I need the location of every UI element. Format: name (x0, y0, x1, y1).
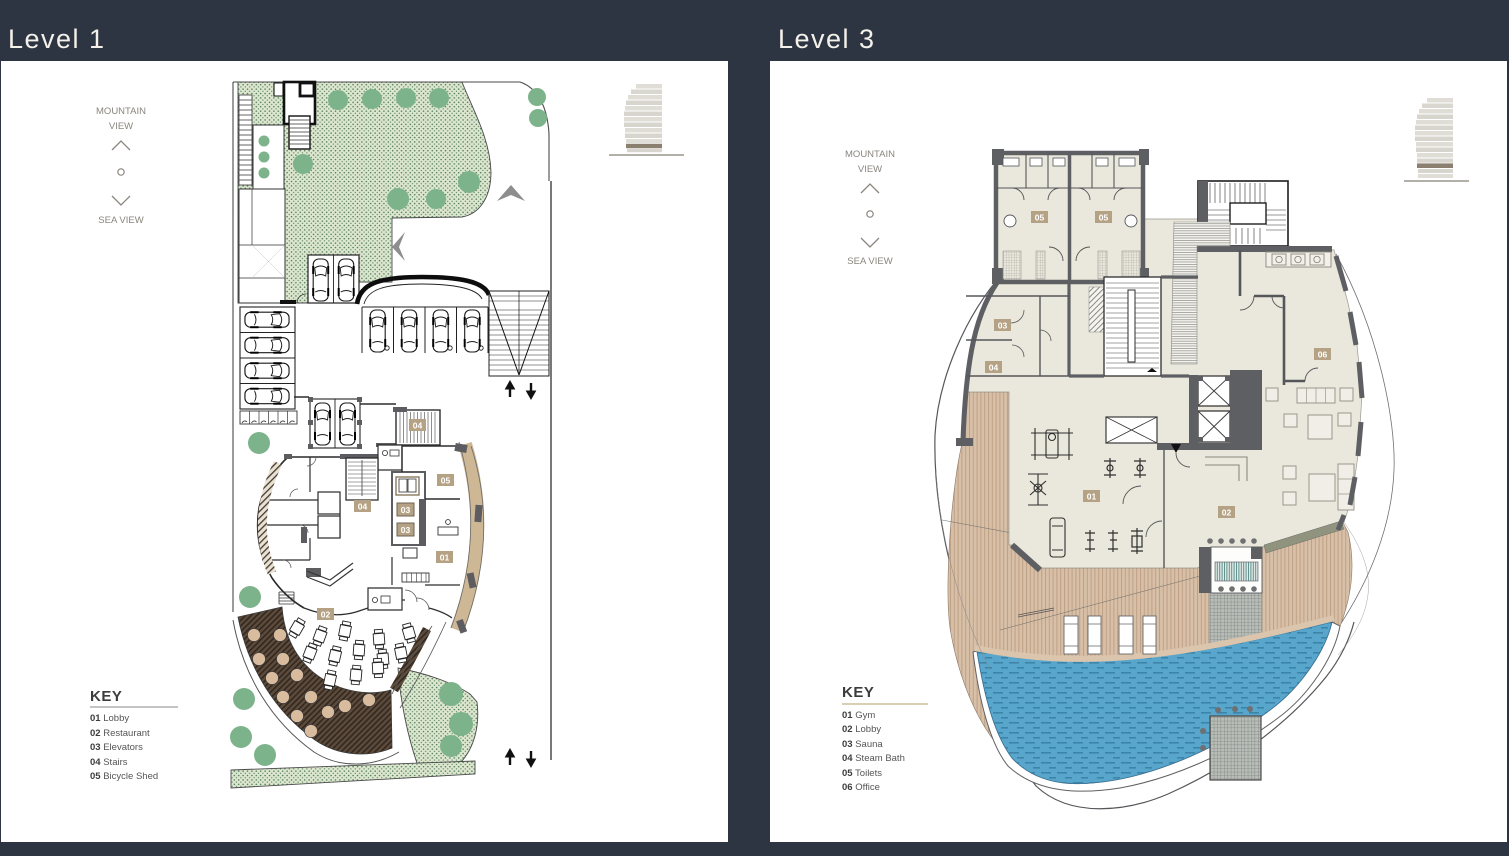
svg-text:06 Office: 06 Office (842, 782, 880, 793)
svg-text:05 Bicycle Shed: 05 Bicycle Shed (90, 771, 158, 782)
svg-text:01: 01 (1087, 492, 1097, 502)
svg-text:02 Lobby: 02 Lobby (842, 724, 881, 735)
svg-text:02 Restaurant: 02 Restaurant (90, 728, 150, 739)
svg-text:03 Sauna: 03 Sauna (842, 739, 883, 750)
svg-text:02: 02 (1222, 508, 1232, 518)
svg-text:SEA VIEW: SEA VIEW (98, 215, 143, 226)
svg-text:SEA VIEW: SEA VIEW (847, 256, 892, 267)
svg-text:03: 03 (401, 505, 411, 515)
svg-text:05: 05 (1099, 213, 1109, 223)
svg-text:03 Elevators: 03 Elevators (90, 742, 143, 753)
svg-text:06: 06 (1318, 350, 1328, 360)
svg-text:01: 01 (440, 553, 450, 563)
svg-text:05 Toilets: 05 Toilets (842, 768, 882, 779)
svg-text:04 Stairs: 04 Stairs (90, 757, 128, 768)
svg-text:05: 05 (1035, 213, 1045, 223)
svg-text:05: 05 (441, 476, 451, 486)
svg-text:VIEW: VIEW (109, 121, 133, 132)
svg-text:01 Lobby: 01 Lobby (90, 713, 129, 724)
svg-text:04: 04 (358, 502, 368, 512)
svg-text:04 Steam Bath: 04 Steam Bath (842, 753, 905, 764)
svg-text:03: 03 (401, 525, 411, 535)
svg-text:KEY: KEY (90, 688, 122, 705)
svg-text:KEY: KEY (842, 684, 874, 701)
svg-text:MOUNTAIN: MOUNTAIN (845, 149, 895, 160)
svg-text:02: 02 (321, 610, 331, 620)
svg-text:MOUNTAIN: MOUNTAIN (96, 106, 146, 117)
svg-text:03: 03 (998, 321, 1008, 331)
svg-text:VIEW: VIEW (858, 164, 882, 175)
svg-text:04: 04 (413, 421, 423, 431)
svg-text:04: 04 (989, 363, 999, 373)
svg-text:01 Gym: 01 Gym (842, 710, 875, 721)
